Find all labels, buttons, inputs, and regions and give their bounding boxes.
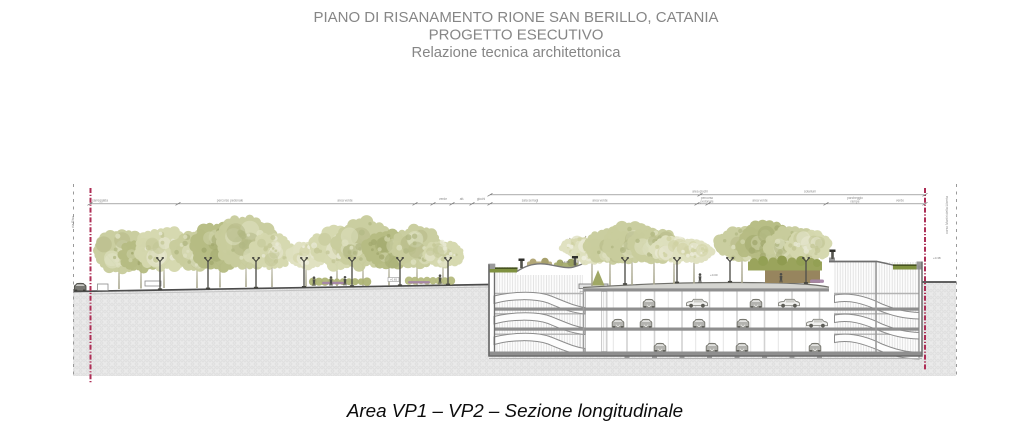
svg-text:corso Martiri della Liberta: corso Martiri della Liberta [945, 196, 949, 234]
svg-text:area verde: area verde [592, 199, 607, 203]
svg-text:sala serragi: sala serragi [522, 199, 539, 203]
svg-text:solarium: solarium [804, 190, 816, 194]
svg-text:Relazione tecnica architettoni: Relazione tecnica architettonica [412, 45, 622, 61]
svg-text:+0.00: +0.00 [710, 273, 718, 277]
svg-text:area verde: area verde [752, 199, 767, 203]
svg-text:giochi: giochi [477, 197, 486, 201]
svg-text:+0.38: +0.38 [933, 256, 941, 260]
svg-text:+0.65: +0.65 [390, 278, 398, 282]
svg-text:percorso pedonale: percorso pedonale [217, 199, 244, 203]
svg-text:via Riso: via Riso [71, 216, 75, 228]
svg-text:carreggiata: carreggiata [92, 199, 108, 203]
svg-text:PROGETTO ESECUTIVO: PROGETTO ESECUTIVO [429, 27, 604, 44]
svg-text:verde: verde [896, 199, 904, 203]
svg-text:PIANO DI RISANAMENTO RIONE SAN: PIANO DI RISANAMENTO RIONE SAN BERILLO, … [313, 9, 718, 26]
svg-text:Area VP1 – VP2 – Sezione longi: Area VP1 – VP2 – Sezione longitudinale [346, 400, 683, 421]
svg-text:verde: verde [439, 197, 447, 201]
svg-text:area verde: area verde [337, 199, 352, 203]
svg-text:+3.80: +3.80 [562, 260, 570, 264]
svg-text:rampe: rampe [850, 200, 859, 204]
svg-text:area giochi: area giochi [692, 190, 708, 194]
svg-text:att.: att. [460, 197, 465, 201]
svg-text:pedonale: pedonale [700, 200, 713, 204]
